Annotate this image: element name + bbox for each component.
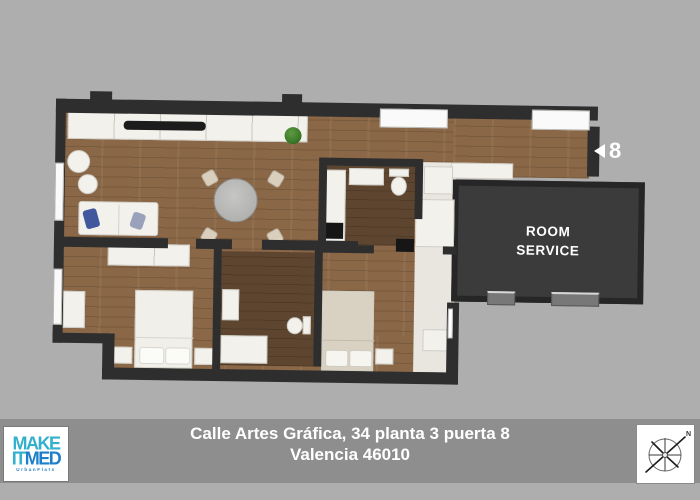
desk [422, 329, 448, 351]
entry-closet [451, 162, 513, 179]
sofa-seam [118, 205, 119, 235]
room-service-label: ROOM SERVICE [498, 222, 599, 261]
bathroom1-sink [349, 168, 384, 186]
nightstand-1a [112, 346, 132, 363]
door-arrow-icon [594, 144, 605, 158]
wall-corridor-3 [262, 240, 324, 251]
elevator-2 [551, 292, 599, 307]
bed2-fold [323, 340, 375, 342]
bed-2 [321, 291, 374, 372]
logo-tagline: UrbanFlats [16, 468, 56, 472]
window-top-2 [532, 110, 590, 131]
elevator-1 [487, 291, 515, 305]
wall-bathroom1-bottom [318, 241, 358, 252]
compass-rose-icon: N [640, 428, 692, 480]
toilet1-tank [389, 169, 409, 177]
wall-corridor-1 [62, 237, 168, 249]
bed1-fold [136, 337, 194, 339]
toilet2-tank [303, 316, 311, 334]
tv-unit [396, 239, 414, 252]
bed1-pillow-2 [165, 347, 190, 364]
brand-logo: MAKE ITMED UrbanFlats [4, 427, 68, 481]
bed2-pillow-1 [325, 350, 348, 367]
wall-chimney-2 [282, 94, 302, 107]
window-top-1 [380, 108, 448, 128]
address-line-2: Valencia 46010 [0, 445, 700, 466]
compass: N [636, 424, 695, 484]
bed2-pillow-2 [349, 350, 372, 367]
sofa-pillow-blue [82, 208, 100, 230]
door-marker: 8 [594, 140, 621, 162]
sofa [78, 201, 158, 236]
sofa-pillow-light [129, 211, 146, 230]
window-left-2 [53, 269, 63, 325]
hall-door [448, 308, 453, 338]
cooktop [124, 121, 206, 131]
address-line-1: Calle Artes Gráfica, 34 planta 3 puerta … [0, 424, 700, 445]
bed-1 [134, 290, 193, 369]
logo-line2-med: MED [25, 447, 61, 468]
wall-bathroom1-right [414, 159, 423, 219]
wall-chimney-1 [90, 91, 112, 103]
nightstand-2 [375, 348, 393, 364]
shower-mat [324, 223, 343, 239]
room-service-area: ROOM SERVICE [451, 180, 645, 305]
floor-plan: ROOM SERVICE [50, 91, 650, 392]
shower-tray [220, 335, 267, 364]
address: Calle Artes Gráfica, 34 planta 3 puerta … [0, 424, 700, 465]
dresser [63, 291, 86, 328]
bed1-pillow-1 [139, 347, 164, 364]
wall-bathroom1-top [319, 158, 421, 168]
wall-bathroom2-right [313, 250, 323, 366]
logo-line2: ITMED [12, 450, 61, 465]
compass-north-label: N [686, 431, 691, 438]
bathroom3-sink [424, 166, 453, 194]
door-number: 8 [609, 140, 621, 162]
bathroom2-sink [222, 289, 239, 320]
logo-line2-it: IT [12, 447, 25, 468]
window-left-1 [54, 163, 64, 221]
wall-bathroom1-left [318, 166, 327, 245]
wall-hallway [443, 246, 457, 254]
